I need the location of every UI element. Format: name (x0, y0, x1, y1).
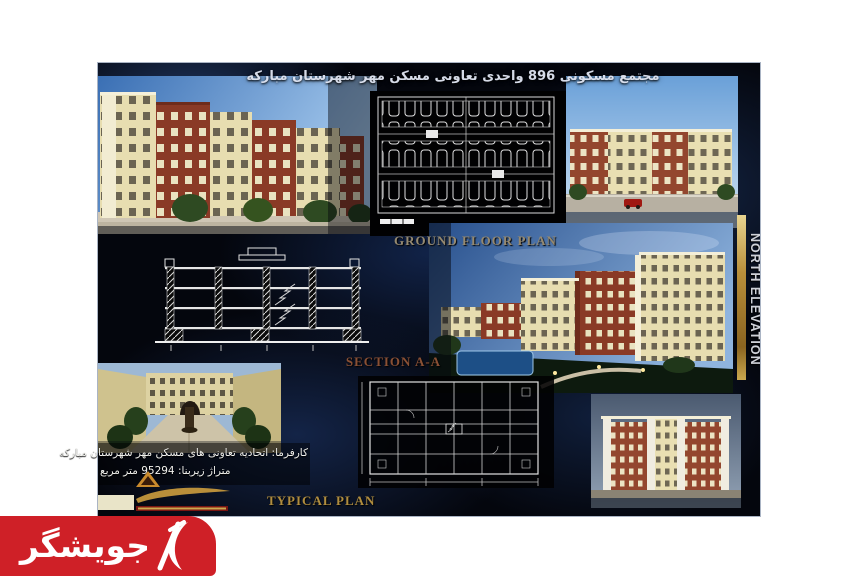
label-section-aa: SECTION A-A (336, 354, 451, 370)
label-typical-plan: TYPICAL PLAN (267, 493, 372, 509)
consultant-logo-icon (98, 469, 238, 517)
typical-plan-drawing (346, 376, 561, 493)
board-title: مجتمع مسکونی 896 واحدی تعاونی مسکن مهر ش… (198, 69, 708, 89)
label-north-elevation: NORTH ELEVATION (746, 233, 762, 443)
architecture-board: GROUND FLOOR PLAN (97, 62, 761, 517)
section-aa-drawing (151, 241, 373, 359)
render-perspective-top-left-image (98, 76, 377, 234)
watermark-banner: جویشگر (0, 516, 216, 576)
render-elevation-bottom-right-image (591, 394, 741, 508)
jooyeshgar-logo-icon (144, 520, 202, 572)
presentation-page: GROUND FLOOR PLAN (0, 0, 864, 576)
watermark-text: جویشگر (22, 524, 150, 568)
render-elevation-top-right-image (566, 76, 738, 228)
north-elevation-gold-bar (737, 215, 746, 380)
ground-floor-plan-drawing (370, 91, 566, 236)
label-ground-floor-plan: GROUND FLOOR PLAN (394, 233, 544, 249)
render-courtyard-bottom-left-image (98, 363, 281, 453)
client-info-line1: کارفرما: اتحادیه تعاونی های مسکن مهر شهر… (100, 447, 308, 459)
